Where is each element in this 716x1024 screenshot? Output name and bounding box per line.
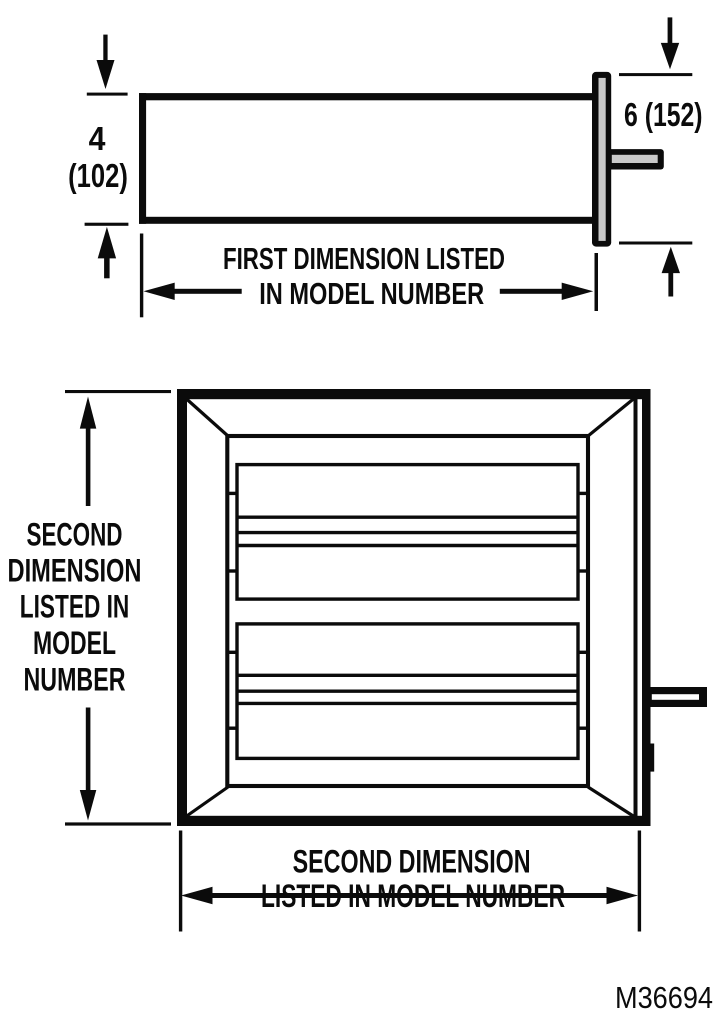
svg-text:6 (152): 6 (152) [624,97,703,134]
svg-text:(102): (102) [68,158,128,195]
svg-text:IN MODEL NUMBER: IN MODEL NUMBER [259,276,484,311]
svg-text:M36694: M36694 [615,980,713,1015]
svg-text:SECOND DIMENSION: SECOND DIMENSION [293,844,531,880]
svg-text:DIMENSION: DIMENSION [8,553,142,589]
svg-text:MODEL: MODEL [33,625,116,661]
svg-text:FIRST DIMENSION LISTED: FIRST DIMENSION LISTED [223,241,505,276]
svg-text:LISTED IN: LISTED IN [20,589,130,625]
svg-text:LISTED IN MODEL NUMBER: LISTED IN MODEL NUMBER [261,878,565,914]
svg-text:4: 4 [89,121,106,158]
svg-text:SECOND: SECOND [27,517,123,553]
svg-text:NUMBER: NUMBER [24,662,126,698]
